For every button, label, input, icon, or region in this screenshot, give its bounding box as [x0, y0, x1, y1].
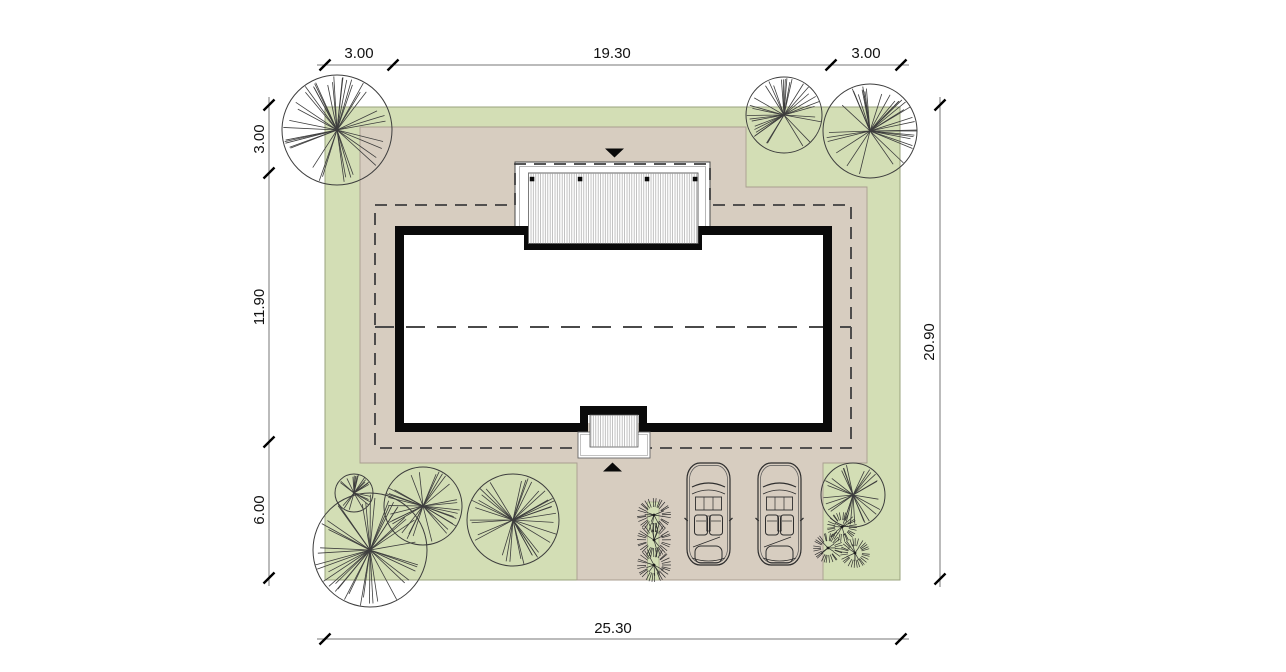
dimension-right: 20.90 [921, 97, 946, 587]
dimension-top: 3.00 19.30 3.00 [317, 45, 909, 71]
dimension-bottom: 25.30 [317, 620, 909, 645]
building-interior [404, 235, 823, 423]
dim-label: 6.00 [251, 495, 268, 524]
dim-label: 19.30 [593, 45, 631, 62]
dim-label: 3.00 [251, 124, 268, 153]
terrace-decking [529, 173, 699, 244]
dim-label: 3.00 [851, 45, 880, 62]
dim-label: 25.30 [594, 620, 632, 637]
dim-label: 3.00 [344, 45, 373, 62]
car [756, 463, 804, 565]
car [685, 463, 733, 565]
site-plan-canvas: 3.00 19.30 3.00 3.00 11.90 6.00 20.90 25… [0, 0, 1286, 672]
site-plan-page: 3.00 19.30 3.00 3.00 11.90 6.00 20.90 25… [0, 0, 1286, 672]
dim-label: 20.90 [921, 323, 938, 361]
dimension-left: 3.00 11.90 6.00 [251, 97, 275, 586]
dim-label: 11.90 [251, 289, 268, 325]
